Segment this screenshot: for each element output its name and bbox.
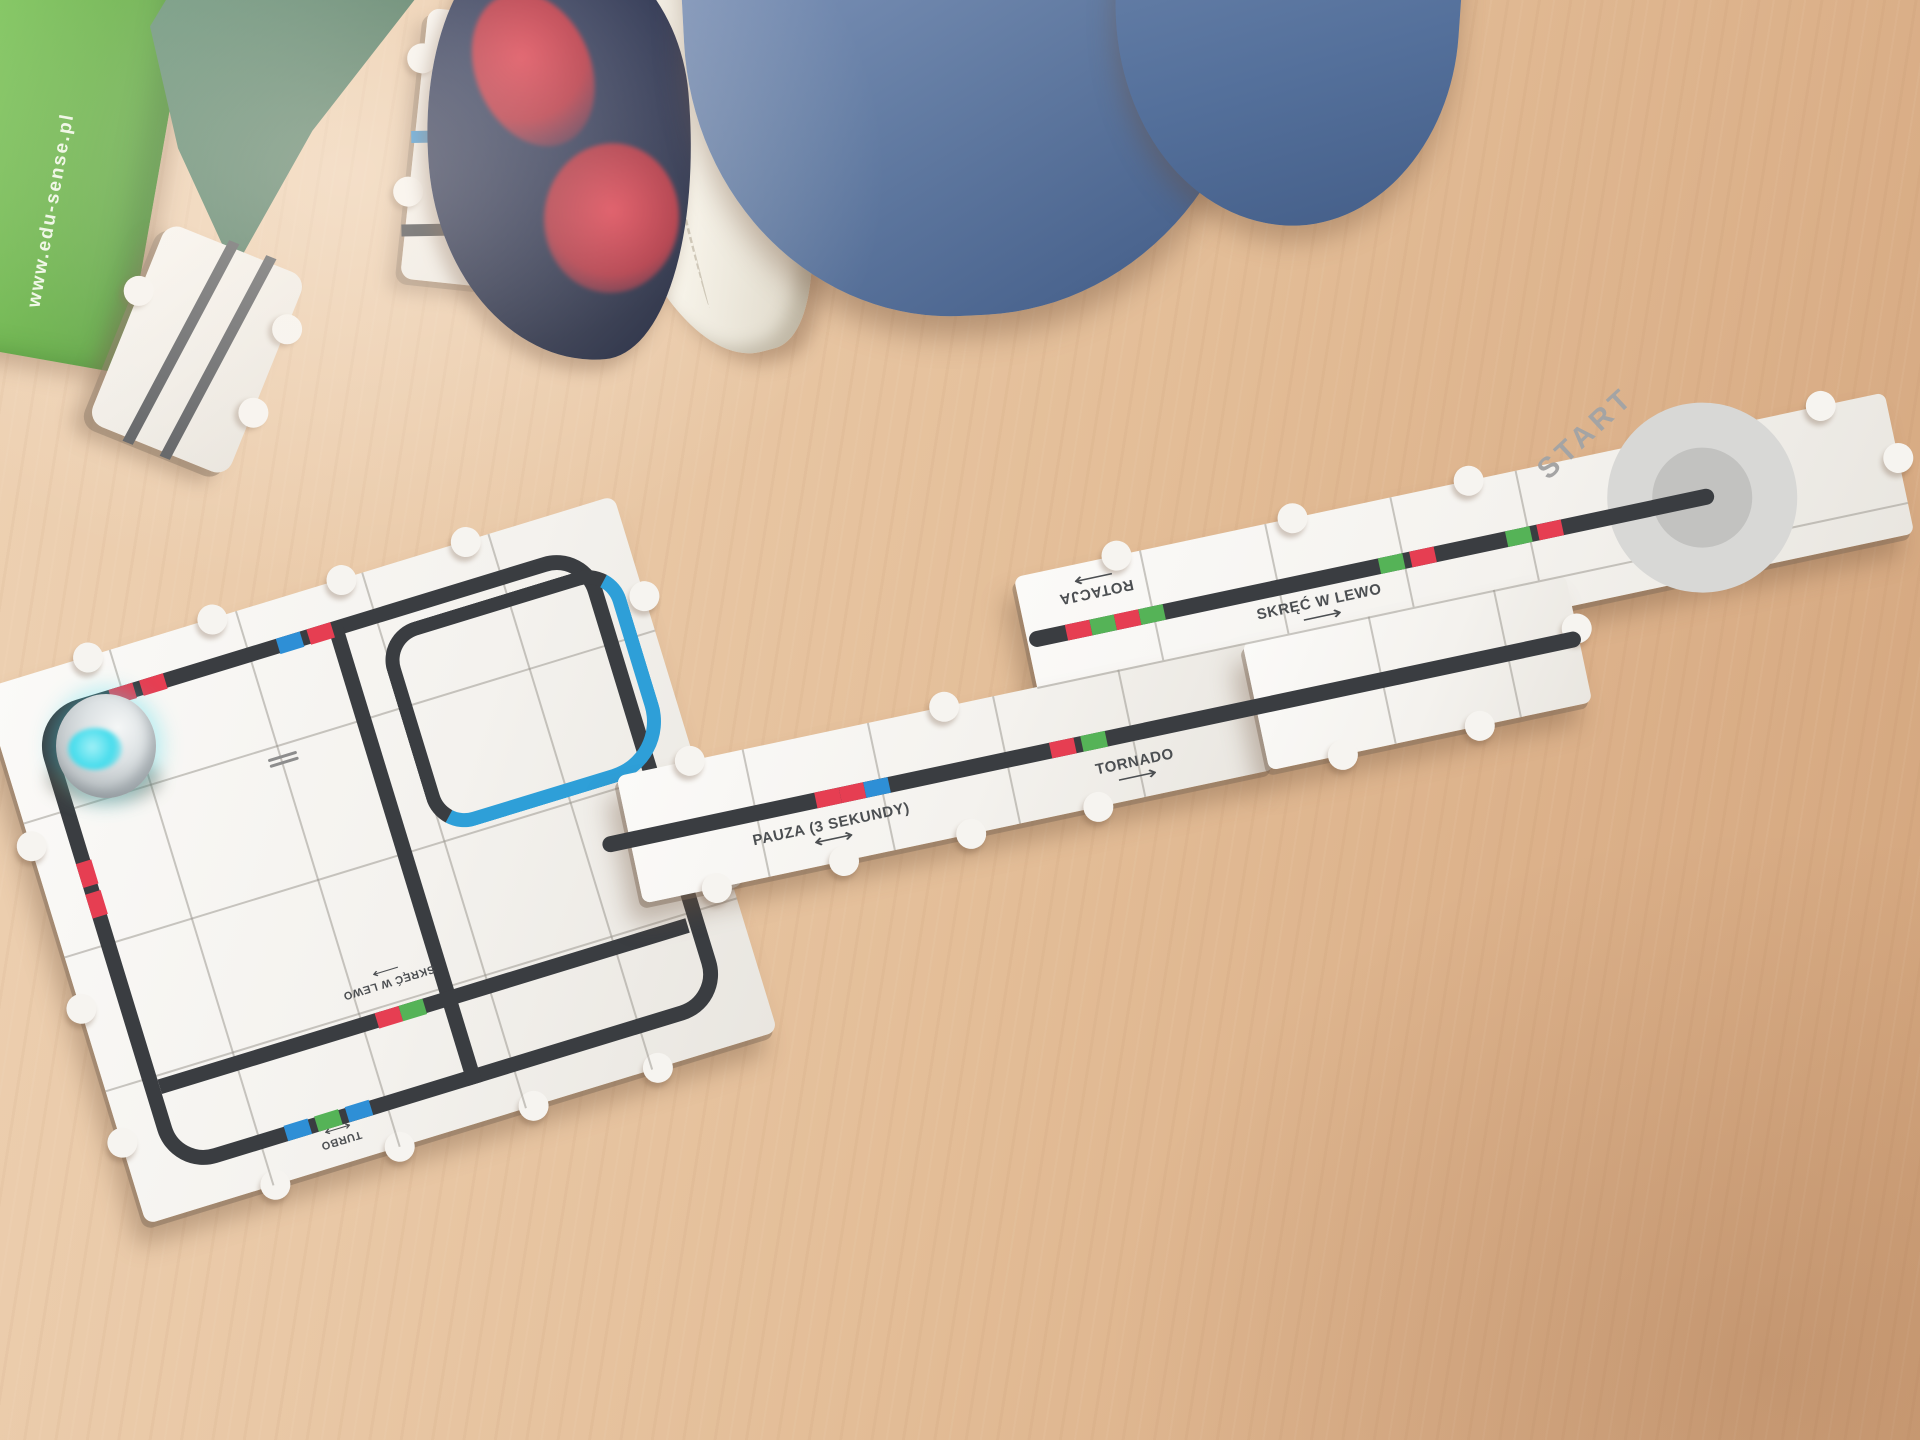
puzzle-knob <box>392 175 425 208</box>
puzzle-knob <box>234 393 273 432</box>
arrow-icon: ⟶ <box>1301 606 1344 627</box>
puzzle-knob <box>447 523 484 560</box>
puzzle-knob <box>268 310 307 349</box>
felt-mat <box>150 0 430 270</box>
puzzle-knob <box>63 990 100 1027</box>
ozobot-robot <box>56 694 156 798</box>
arrow-icon: ⟷ <box>813 828 856 849</box>
arrow-icon: ⟶ <box>1072 567 1115 588</box>
puzzle-knob <box>13 827 50 864</box>
puzzle-knob <box>69 639 106 676</box>
photo-ozobot-puzzle-scene: www.edu-sense.pl <box>0 0 1920 1440</box>
robot-light <box>68 728 122 770</box>
arrow-icon: ⟶ <box>1116 766 1159 787</box>
puzzle-knob <box>104 1124 141 1161</box>
puzzle-knob <box>626 577 663 614</box>
puzzle-strip: PAUZA (3 SEKUNDY) ⟷ TORNADO ⟶ ROTACJA ⟶ … <box>616 502 1920 904</box>
puzzle-knob <box>639 1049 676 1086</box>
edusense-box-url: www.edu-sense.pl <box>24 0 103 309</box>
puzzle-knob <box>194 601 231 638</box>
puzzle-knob <box>323 561 360 598</box>
puzzle-knob <box>257 1166 294 1203</box>
